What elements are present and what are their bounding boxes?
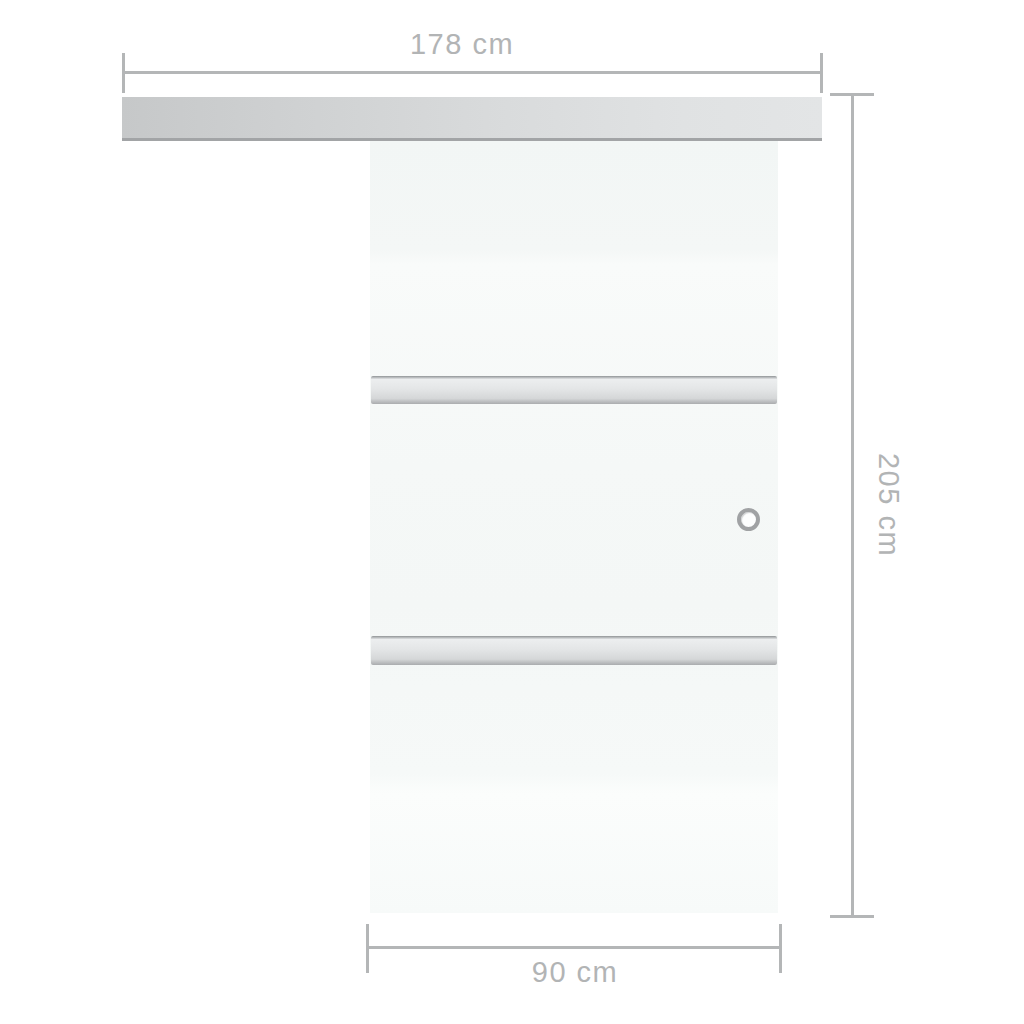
sliding-rail bbox=[122, 97, 822, 141]
top-dimension-label: 178 cm bbox=[362, 28, 562, 61]
door-crossbar-upper bbox=[371, 376, 777, 404]
top-dimension-tick-right bbox=[820, 53, 823, 93]
product-dimension-diagram: 178 cm 205 cm 90 cm bbox=[0, 0, 1024, 1024]
bottom-dimension-tick-right bbox=[779, 924, 782, 973]
right-dimension-label: 205 cm bbox=[872, 453, 905, 557]
door-crossbar-lower bbox=[371, 636, 777, 665]
right-dimension-tick-bottom bbox=[830, 915, 874, 918]
bottom-dimension-tick-left bbox=[366, 924, 369, 973]
right-dimension-tick-top bbox=[830, 93, 874, 96]
top-dimension-tick-left bbox=[122, 53, 125, 93]
door-handle-ring-icon bbox=[737, 508, 760, 531]
bottom-dimension-label: 90 cm bbox=[475, 956, 675, 989]
top-dimension-line bbox=[124, 71, 821, 74]
right-dimension-line bbox=[851, 95, 854, 917]
bottom-dimension-line bbox=[368, 946, 782, 949]
glass-door-panel bbox=[370, 141, 778, 913]
